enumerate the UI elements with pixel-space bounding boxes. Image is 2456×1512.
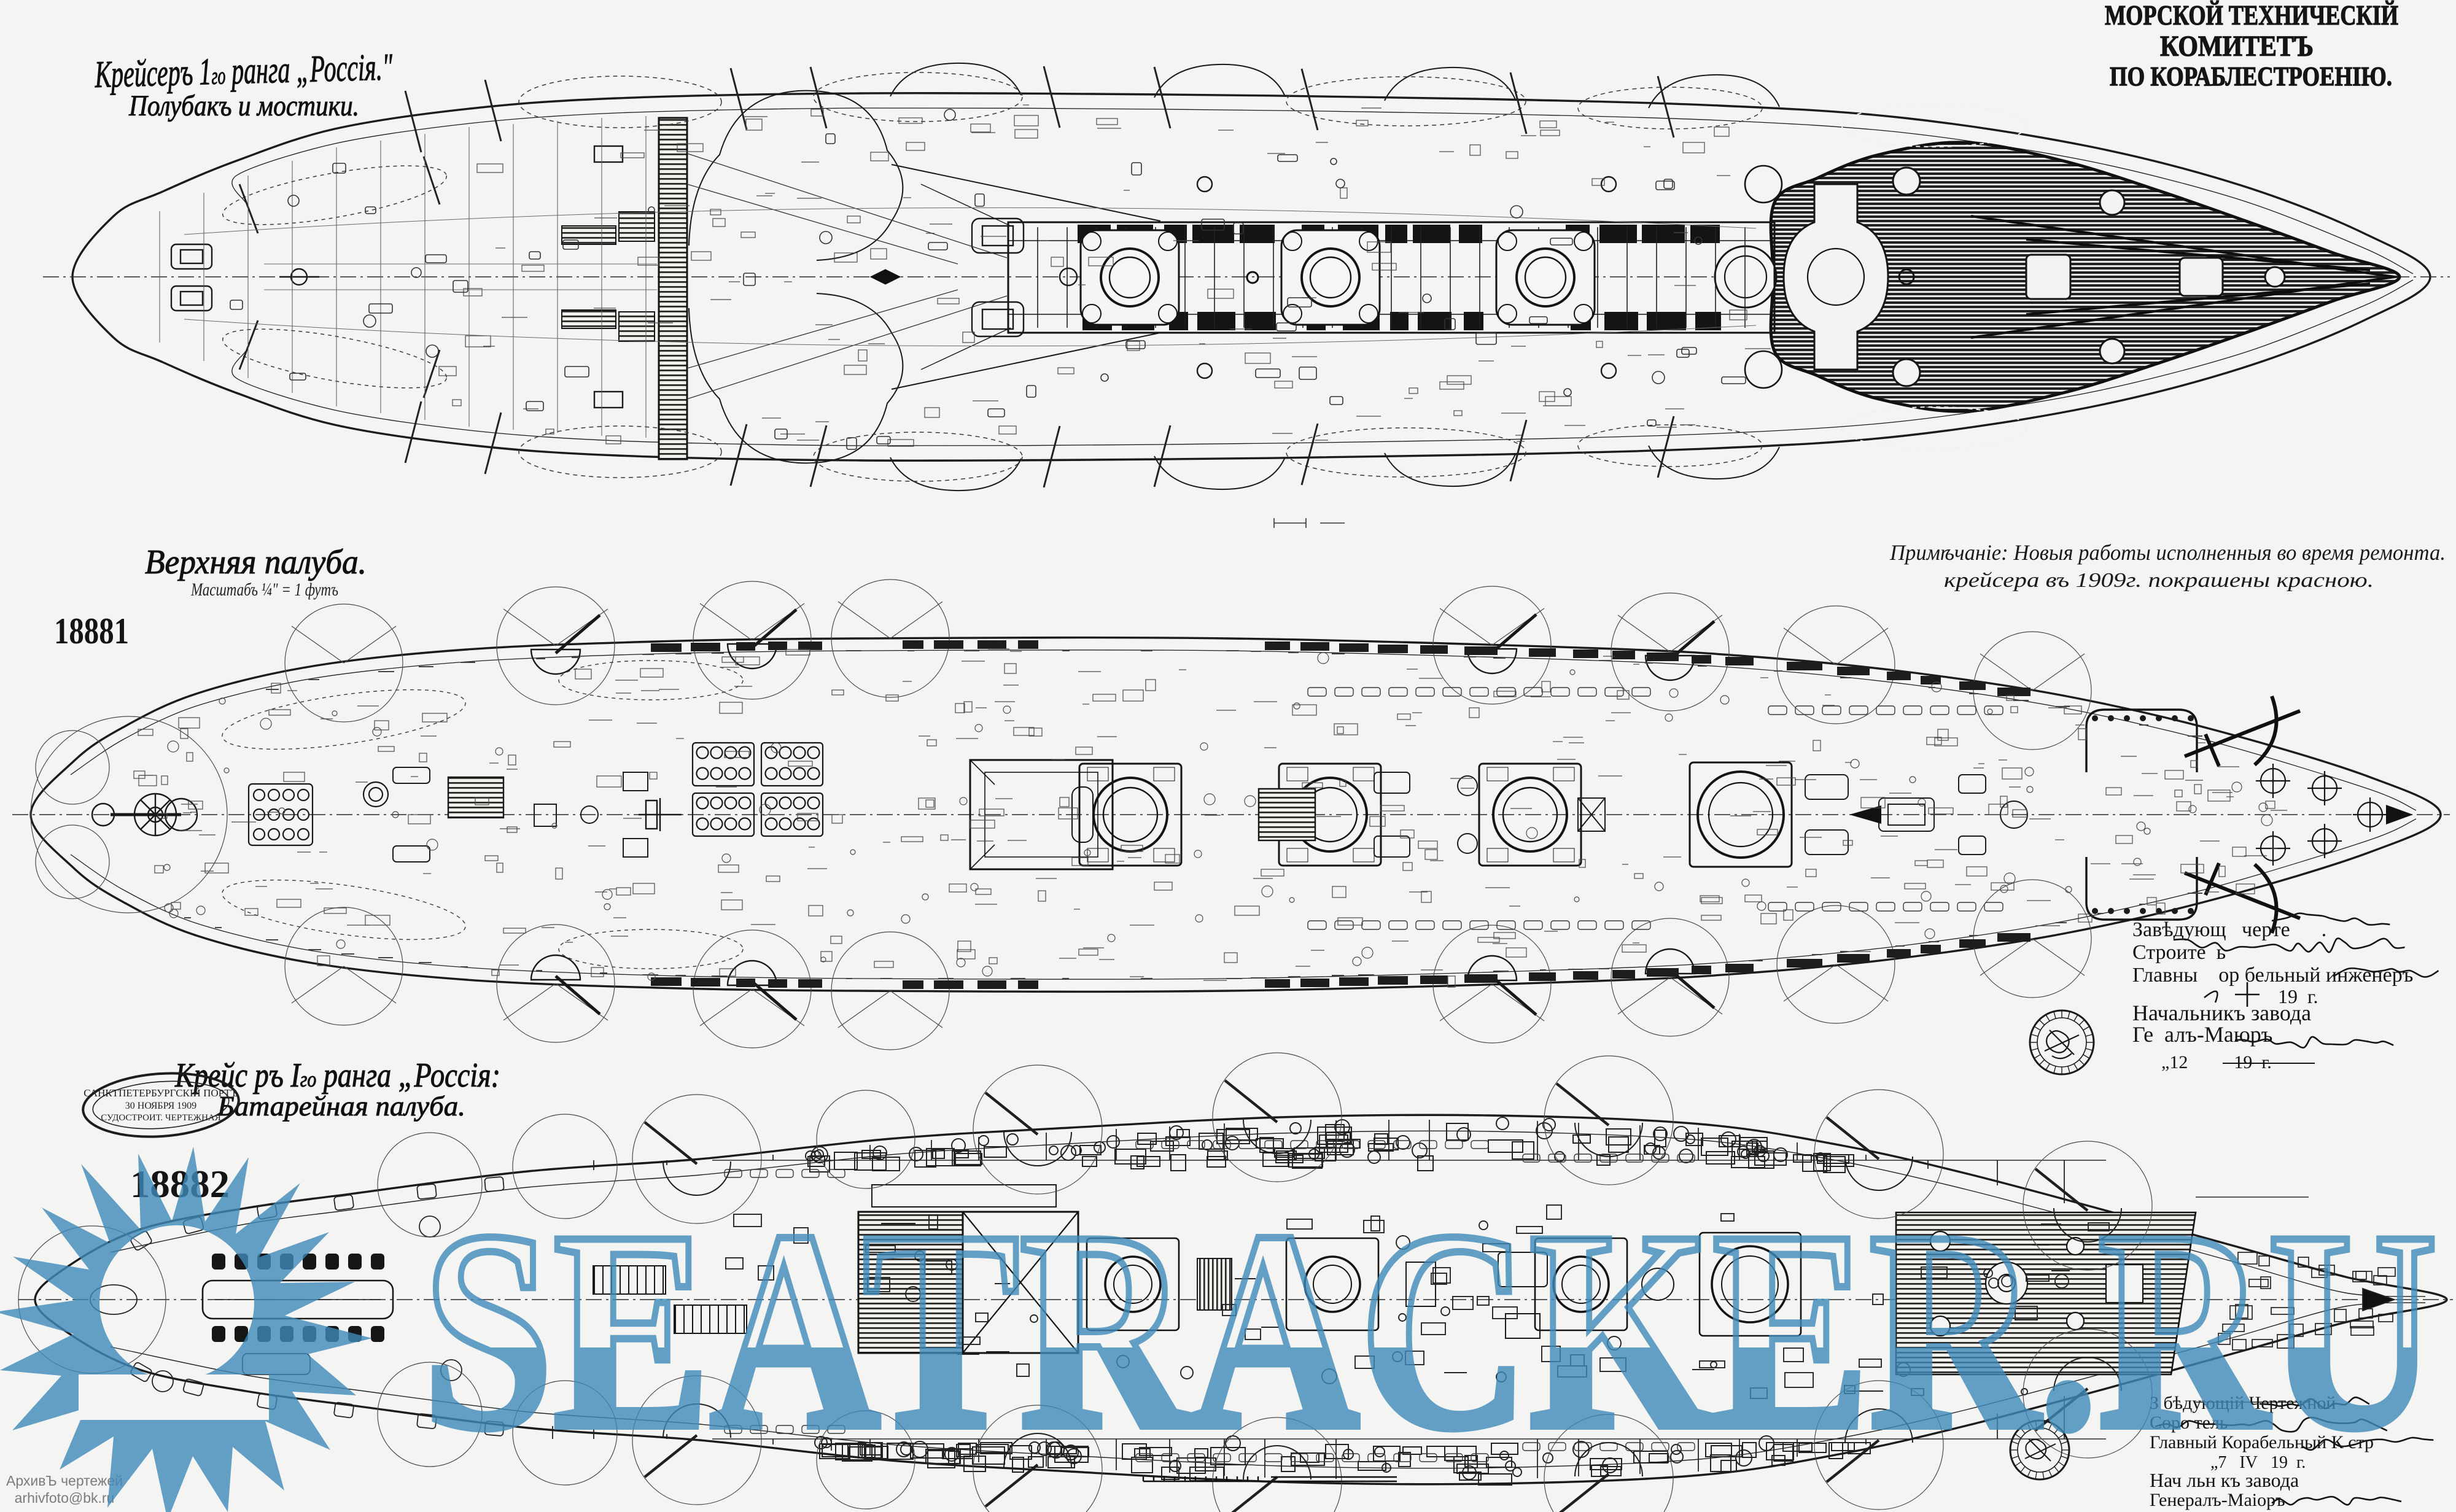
- svg-text:Полубакъ и мостики.: Полубакъ и мостики.: [128, 90, 359, 122]
- svg-text:arhivfoto@bk.ru: arhivfoto@bk.ru: [15, 1490, 115, 1506]
- svg-text:30 НОЯБРЯ 1909: 30 НОЯБРЯ 1909: [125, 1101, 196, 1111]
- svg-text:крейсера въ 1909г. покрашены: крейсера въ 1909г. покрашены красною.: [1944, 569, 2374, 592]
- svg-text:Генералъ-Маіоръ: Генералъ-Маіоръ: [2150, 1490, 2285, 1510]
- svg-text:МОРСКОЙ ТЕХНИЧЕСКІЙ: МОРСКОЙ ТЕХНИЧЕСКІЙ: [2105, 0, 2398, 31]
- svg-text:ПО КОРАБЛЕСТРОЕНІЮ.: ПО КОРАБЛЕСТРОЕНІЮ.: [2110, 61, 2392, 91]
- svg-text:Верхняя палуба.: Верхняя палуба.: [145, 543, 367, 581]
- svg-text:Главны ор бельный инженеръ: Главны ор бельный инженеръ: [2132, 964, 2413, 987]
- svg-text:„12 19 г.: „12 19 г.: [2161, 1052, 2272, 1072]
- svg-text:Строите ь: Строите ь: [2132, 941, 2226, 964]
- svg-text:Примѣчаніе: Новыя работы испол: Примѣчаніе: Новыя работы исполненныя во …: [1889, 540, 2446, 565]
- svg-text:АрхивЪ чертежей: АрхивЪ чертежей: [6, 1473, 123, 1489]
- svg-text:18881: 18881: [54, 611, 129, 651]
- svg-text:КОМИТЕТЪ: КОМИТЕТЪ: [2160, 30, 2314, 63]
- svg-text:Масштабъ ¼" = 1 футъ: Масштабъ ¼" = 1 футъ: [190, 580, 338, 600]
- svg-text:Батарейная палуба.: Батарейная палуба.: [217, 1090, 465, 1122]
- svg-text:Завѣдующ черте .: Завѣдующ черте .: [2132, 918, 2326, 941]
- svg-text:Ге алъ-Маюръ: Ге алъ-Маюръ: [2132, 1022, 2272, 1047]
- svg-text:Крейсеръ 1го ранга „Россія.": Крейсеръ 1го ранга „Россія.": [94, 46, 394, 96]
- svg-text:САНКТПЕТЕРБУРГСКІЙ ПОРТЪ: САНКТПЕТЕРБУРГСКІЙ ПОРТЪ: [84, 1087, 238, 1099]
- svg-text:СУДОСТРОИТ. ЧЕРТЕЖНАЯ: СУДОСТРОИТ. ЧЕРТЕЖНАЯ: [101, 1113, 221, 1123]
- svg-text:Начальникъ завода: Начальникъ завода: [2132, 1001, 2311, 1025]
